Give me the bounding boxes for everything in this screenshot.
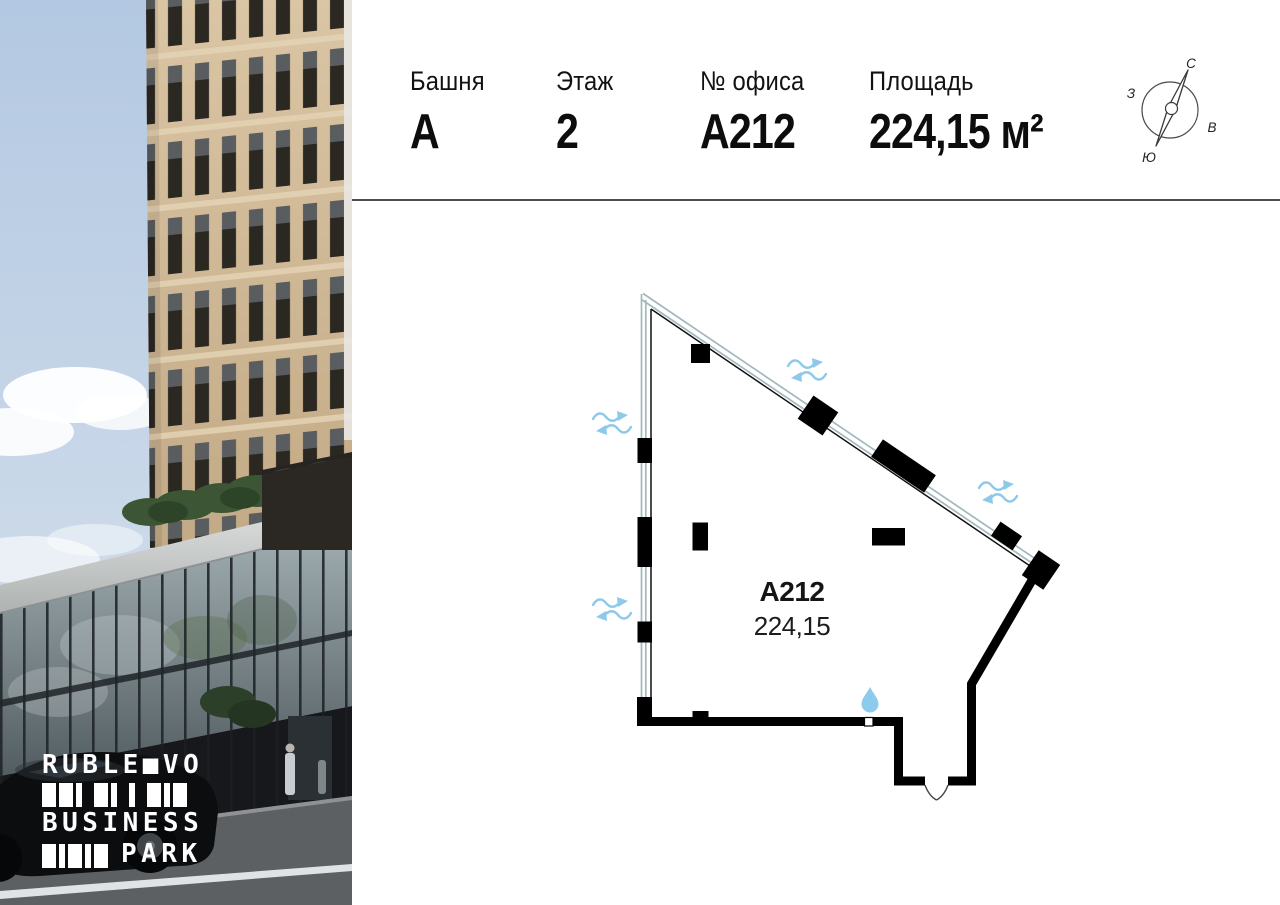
logo-bar xyxy=(42,844,56,868)
logo-bar xyxy=(85,844,91,868)
compass-label-west: З xyxy=(1127,86,1136,101)
floor-plan: А212 224,15 xyxy=(555,258,1095,838)
logo-bar xyxy=(85,783,94,807)
field-floor-label: Этаж xyxy=(556,66,614,97)
logo-bar xyxy=(76,783,82,807)
field-area: Площадь 224,15 м² xyxy=(869,66,1076,160)
logo-barcode-row2 xyxy=(42,844,111,868)
compass-rose: С З В Ю xyxy=(1118,48,1242,172)
floorplan-spec-sheet: RUBLE■VO BUSINESS PARK Башня А Этаж 2 № … xyxy=(0,0,1280,905)
field-office-number-value: А212 xyxy=(700,104,795,160)
compass-label-north: С xyxy=(1186,56,1196,71)
field-floor-value: 2 xyxy=(556,104,578,160)
logo-bar xyxy=(59,783,73,807)
airflow-icon-left-upper xyxy=(593,411,631,435)
field-tower: Башня А xyxy=(410,66,495,160)
plan-area-label: 224,15 xyxy=(754,611,831,641)
logo-bar xyxy=(42,783,56,807)
logo-bar xyxy=(147,783,161,807)
logo-bar xyxy=(94,844,108,868)
water-point-icon xyxy=(862,687,879,713)
logo-line-business: BUSINESS xyxy=(42,810,212,837)
airflow-icon-left-lower xyxy=(593,597,631,621)
logo-bar xyxy=(111,783,117,807)
logo-bar xyxy=(173,783,187,807)
logo-line-park: PARK xyxy=(121,841,202,868)
logo-bar xyxy=(129,783,135,807)
logo-bar xyxy=(164,783,170,807)
compass-label-south: Ю xyxy=(1142,150,1156,165)
logo-line-rublevo: RUBLE■VO xyxy=(42,752,212,779)
building-photo: RUBLE■VO BUSINESS PARK xyxy=(0,0,352,905)
walls xyxy=(639,570,1038,781)
field-area-value: 224,15 м² xyxy=(869,104,1043,160)
logo-bar xyxy=(68,844,82,868)
field-tower-label: Башня xyxy=(410,66,485,97)
plan-unit-label: А212 xyxy=(760,576,825,607)
inner-wall-lines xyxy=(651,309,1036,717)
compass-hub xyxy=(1166,103,1178,115)
brand-logo: RUBLE■VO BUSINESS PARK xyxy=(42,752,212,868)
door-swing xyxy=(925,785,948,800)
field-office-number-label: № офиса xyxy=(700,66,804,97)
logo-barcode-row1 xyxy=(42,783,212,807)
field-tower-value: А xyxy=(410,104,439,160)
header-divider xyxy=(352,199,1280,201)
field-office-number: № офиса А212 xyxy=(700,66,819,160)
field-floor: Этаж 2 xyxy=(556,66,621,160)
logo-bar xyxy=(59,844,65,868)
logo-bar xyxy=(94,783,108,807)
compass-label-east: В xyxy=(1207,120,1216,135)
field-area-label: Площадь xyxy=(869,66,974,97)
logo-bar xyxy=(138,783,147,807)
logo-bar xyxy=(120,783,129,807)
airflow-icon-top xyxy=(788,358,826,382)
wall-piers xyxy=(637,438,709,726)
airflow-icon-right xyxy=(979,480,1017,504)
wall-notch xyxy=(865,718,874,727)
